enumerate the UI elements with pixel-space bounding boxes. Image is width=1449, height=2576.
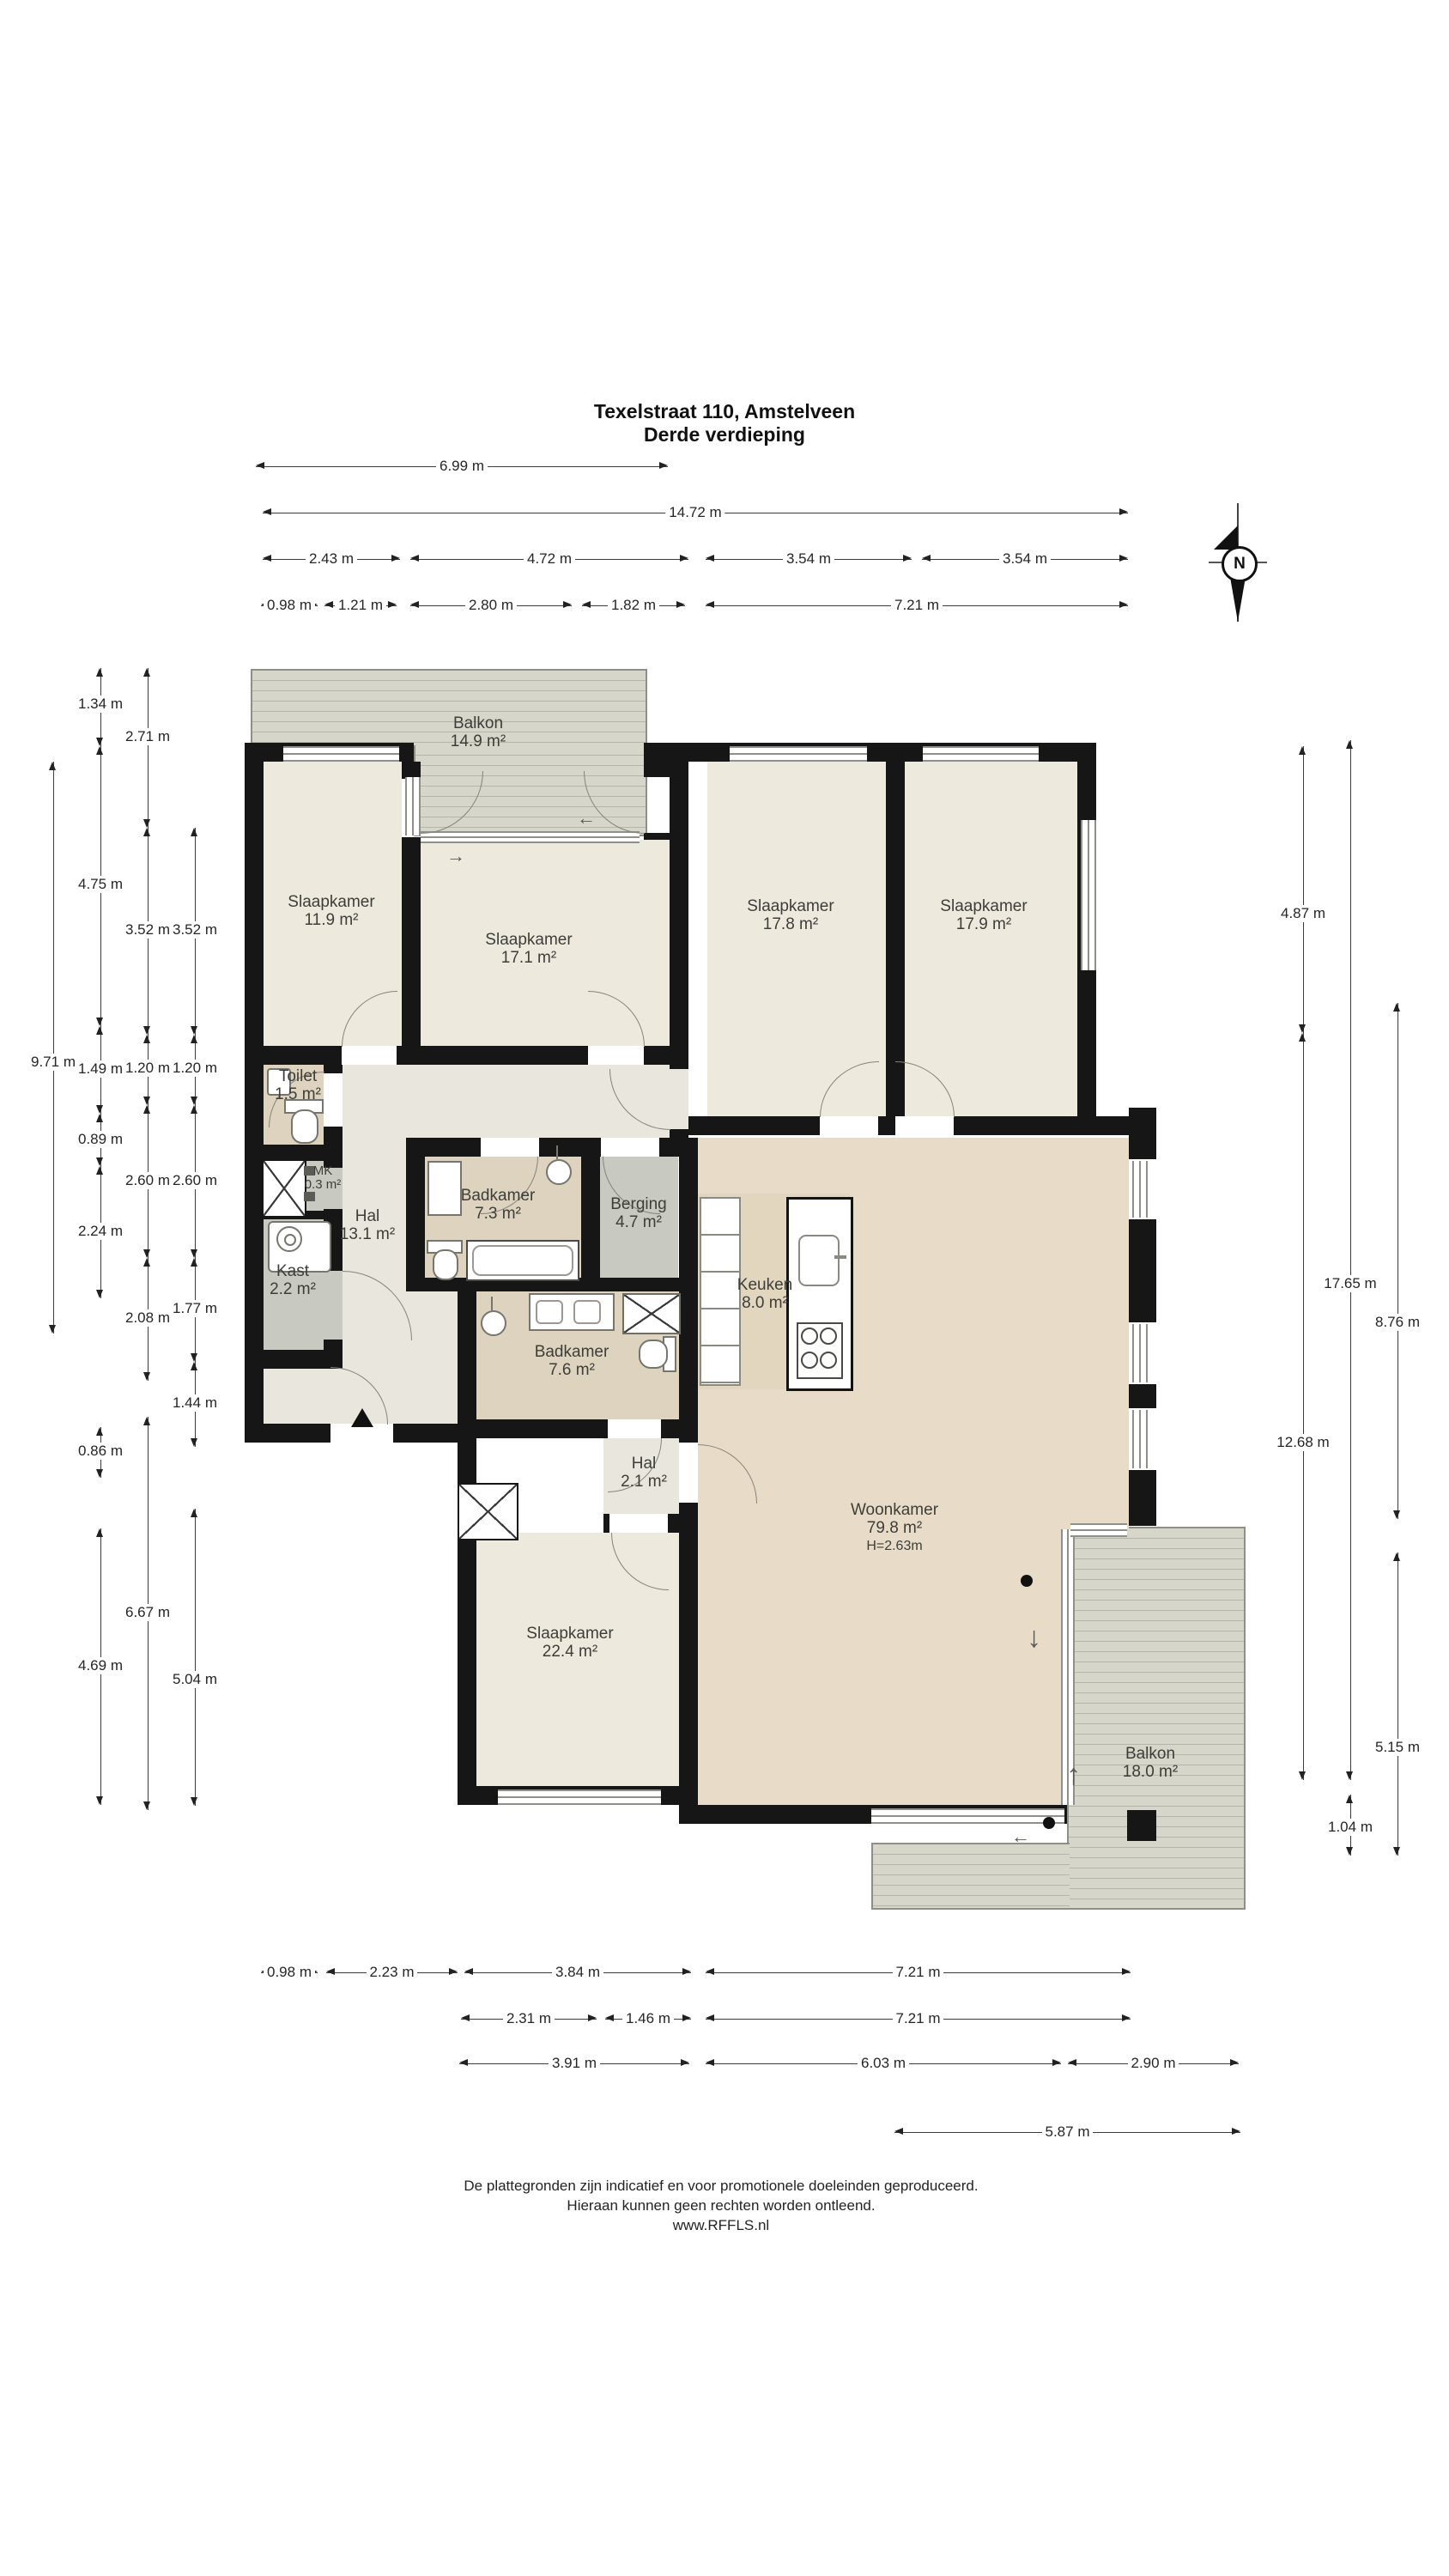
wall [954, 1116, 1096, 1135]
dimension-label: 7.21 m [891, 597, 943, 614]
dimension-line-horizontal: 1.21 m [324, 605, 397, 606]
room-label-slaapkamer-5: Slaapkamer22.4 m² [526, 1625, 613, 1661]
dimension-label: 6.67 m [122, 1604, 173, 1621]
floorplan-page: Texelstraat 110, Amstelveen Derde verdie… [0, 0, 1449, 2576]
shower-arm-icon [491, 1297, 493, 1310]
dimension-label: 12.68 m [1273, 1434, 1332, 1451]
room-label-balkon-zuid: Balkon18.0 m² [1123, 1745, 1178, 1781]
dimension-line-horizontal: 7.21 m [706, 1972, 1131, 1973]
dimension-line-vertical: 1.34 m [100, 668, 101, 746]
dimension-line-vertical: 5.04 m [195, 1509, 196, 1806]
dimension-line-vertical: 8.76 m [1397, 1003, 1398, 1519]
wall [644, 1046, 688, 1065]
dimension-label: 4.72 m [524, 550, 575, 568]
structural-column [1127, 1810, 1156, 1841]
dimension-label: 2.08 m [122, 1309, 173, 1327]
window [1132, 1324, 1148, 1382]
wall [688, 1116, 820, 1135]
wall [264, 1350, 343, 1369]
compass-rose: N [1222, 546, 1258, 582]
dimension-label: 6.99 m [436, 458, 488, 475]
dimension-line-vertical: 6.67 m [148, 1417, 149, 1810]
dimension-line-vertical: 17.65 m [1350, 740, 1351, 1780]
slide-direction-arrow-icon: ← [577, 809, 596, 828]
dimension-line-vertical: 3.52 m [148, 828, 149, 1035]
window [1132, 1161, 1148, 1218]
window [871, 1808, 1064, 1824]
boiler-dial-dot-icon [284, 1234, 296, 1246]
room-slaapkamer-4-floor [905, 762, 1077, 1116]
dimension-line-vertical: 2.60 m [195, 1105, 196, 1258]
dimension-label: 9.71 m [27, 1054, 79, 1071]
dimension-label: 17.65 m [1320, 1275, 1379, 1292]
footer-website: www.RFFLS.nl [464, 2215, 978, 2235]
dimension-label: 1.34 m [75, 696, 126, 713]
dimension-line-vertical: 5.15 m [1397, 1552, 1398, 1856]
compass-north-label: N [1234, 555, 1246, 573]
dimension-label: 3.54 m [999, 550, 1051, 568]
footer-line: Hieraan kunnen geen rechten worden ontle… [464, 2196, 978, 2215]
dimension-label: 1.20 m [169, 1060, 221, 1077]
dimension-line-vertical: 9.71 m [53, 762, 54, 1334]
washing-machine-icon [622, 1293, 681, 1334]
dimension-label: 7.21 m [893, 2010, 944, 2027]
kitchen-sink-icon [798, 1235, 840, 1286]
room-label-badkamer-1: Badkamer7.3 m² [461, 1187, 536, 1223]
dimension-line-horizontal: 1.82 m [582, 605, 685, 606]
shower-head-icon [546, 1159, 572, 1185]
dimension-line-vertical: 0.89 m [100, 1114, 101, 1166]
dimension-label: 14.72 m [665, 504, 724, 521]
wall [581, 1157, 600, 1278]
wall [1129, 1219, 1156, 1322]
dimension-line-vertical: 1.44 m [195, 1362, 196, 1447]
shower-head-icon [481, 1310, 506, 1336]
dimension-label: 0.86 m [75, 1443, 126, 1460]
footer-disclaimer: De plattegronden zijn indicatief en voor… [464, 2176, 978, 2235]
slide-direction-arrow-icon: ↑ [1066, 1760, 1081, 1789]
wall [603, 1514, 609, 1533]
slide-direction-arrow-icon: ← [1011, 1827, 1030, 1846]
dimension-line-vertical: 12.68 m [1303, 1033, 1304, 1780]
dimension-label: 1.44 m [169, 1394, 221, 1412]
wall [245, 1424, 330, 1443]
balcony-door-opening [405, 777, 421, 835]
dimension-label: 1.77 m [169, 1300, 221, 1317]
window [1132, 1410, 1148, 1468]
dimension-line-horizontal: 2.80 m [410, 605, 572, 606]
address-title: Texelstraat 110, Amstelveen [594, 400, 855, 423]
dimension-label: 3.52 m [169, 921, 221, 939]
window [498, 1789, 661, 1805]
stove-burner-icon [820, 1327, 837, 1345]
sliding-door [421, 831, 640, 843]
stove-burner-icon [801, 1352, 818, 1369]
window [923, 746, 1039, 762]
room-label-slaapkamer-2: Slaapkamer17.1 m² [485, 931, 572, 967]
stove-burner-icon [801, 1327, 818, 1345]
shaft-box [458, 1483, 518, 1540]
room-label-kast: Kast2.2 m² [270, 1262, 316, 1298]
dimension-line-vertical: 2.24 m [100, 1166, 101, 1298]
dimension-line-vertical: 3.52 m [195, 828, 196, 1035]
dimension-line-vertical: 1.20 m [148, 1035, 149, 1105]
dimension-label: 1.49 m [75, 1060, 126, 1078]
balcony-north-deck [251, 669, 647, 750]
dimension-label: 2.80 m [465, 597, 517, 614]
dimension-line-vertical: 1.20 m [195, 1035, 196, 1105]
dimension-label: 3.91 m [549, 2055, 600, 2072]
dimension-line-horizontal: 0.98 m [261, 605, 318, 606]
wall [402, 762, 421, 779]
compass-south-spike-icon [1230, 577, 1246, 622]
wall [1129, 1108, 1156, 1159]
room-label-slaapkamer-1: Slaapkamer11.9 m² [288, 893, 374, 929]
room-label-keuken: Keuken8.0 m² [737, 1276, 792, 1312]
wall [406, 1157, 425, 1278]
shower-arm-icon [556, 1145, 558, 1159]
dimension-label: 3.52 m [122, 921, 173, 939]
dimension-label: 5.87 m [1042, 2123, 1094, 2141]
wall [644, 762, 688, 777]
dimension-label: 2.23 m [367, 1964, 418, 1981]
wall [324, 1065, 343, 1073]
dimension-line-horizontal: 7.21 m [706, 605, 1128, 606]
dimension-line-horizontal: 6.99 m [256, 466, 668, 467]
room-label-slaapkamer-4: Slaapkamer17.9 m² [940, 897, 1027, 933]
dimension-label: 7.21 m [893, 1964, 944, 1981]
wall [264, 1046, 342, 1065]
dimension-label: 1.46 m [622, 2010, 674, 2027]
dimension-line-vertical: 2.60 m [148, 1105, 149, 1258]
footer-line: De plattegronden zijn indicatief en voor… [464, 2176, 978, 2196]
dimension-label: 3.54 m [783, 550, 834, 568]
wall [661, 1419, 679, 1438]
wall [878, 1116, 895, 1135]
room-label-mk: MK0.3 m² [305, 1164, 342, 1192]
dimension-label: 2.60 m [169, 1172, 221, 1189]
stove-burner-icon [820, 1352, 837, 1369]
column-dot [1021, 1575, 1033, 1587]
window [283, 746, 399, 762]
dimension-line-horizontal: 3.54 m [706, 559, 912, 560]
wall [458, 1291, 476, 1424]
wall [397, 1046, 588, 1065]
dimension-line-vertical: 2.08 m [148, 1258, 149, 1381]
wall [670, 777, 688, 1069]
bathtub-inner-icon [472, 1245, 573, 1276]
dimension-line-vertical: 1.04 m [1350, 1795, 1351, 1856]
dimension-line-horizontal: 2.90 m [1068, 2063, 1239, 2064]
room-label-toilet: Toilet1.5 m² [275, 1067, 321, 1103]
dimension-line-horizontal: 4.72 m [410, 559, 688, 560]
bathroom-cabinet-icon [427, 1161, 462, 1216]
wall [458, 1424, 476, 1805]
dimension-line-vertical: 4.69 m [100, 1528, 101, 1805]
dimension-label: 0.89 m [75, 1131, 126, 1148]
dimension-line-vertical: 4.87 m [1303, 746, 1304, 1033]
dimension-label: 5.15 m [1372, 1739, 1423, 1756]
window [730, 746, 867, 762]
page-title: Texelstraat 110, Amstelveen Derde verdie… [594, 400, 855, 447]
room-label-hal-1: Hal13.1 m² [340, 1207, 395, 1243]
kitchen-cabinets [700, 1197, 741, 1386]
shaft-box [262, 1159, 306, 1218]
dimension-label: 0.98 m [264, 597, 315, 614]
dimension-label: 2.71 m [122, 728, 173, 745]
dimension-line-vertical: 1.49 m [100, 1026, 101, 1114]
slide-direction-arrow-icon: → [446, 847, 465, 866]
dimension-label: 2.90 m [1128, 2055, 1179, 2072]
balcony-south-deck [1067, 1527, 1246, 1910]
dimension-label: 1.82 m [608, 597, 659, 614]
wall [393, 1424, 458, 1443]
wall [406, 1138, 481, 1157]
dimension-label: 5.04 m [169, 1671, 221, 1688]
toilet-bowl-icon [433, 1249, 458, 1280]
dimension-line-vertical: 4.75 m [100, 746, 101, 1026]
dimension-label: 2.24 m [75, 1223, 126, 1240]
wall [1129, 1470, 1156, 1526]
room-label-berging: Berging4.7 m² [610, 1195, 667, 1231]
dimension-line-horizontal: 14.72 m [263, 513, 1128, 513]
dimension-label: 3.84 m [552, 1964, 603, 1981]
column-dot [1043, 1817, 1055, 1829]
wall [1129, 1384, 1156, 1408]
wall [476, 1419, 608, 1438]
room-label-badkamer-2: Badkamer7.6 m² [535, 1343, 609, 1379]
sink-basin-icon [573, 1300, 601, 1324]
dimension-label: 1.20 m [122, 1060, 173, 1077]
dimension-line-horizontal: 6.03 m [706, 2063, 1061, 2064]
room-label-woonkamer: Woonkamer79.8 m²H=2.63m [851, 1501, 938, 1555]
wall [402, 837, 421, 1046]
dimension-label: 4.75 m [75, 876, 126, 893]
dimension-line-horizontal: 7.21 m [706, 2019, 1131, 2020]
room-label-slaapkamer-3: Slaapkamer17.8 m² [747, 897, 834, 933]
dimension-line-horizontal: 3.54 m [922, 559, 1128, 560]
dimension-line-vertical: 1.77 m [195, 1258, 196, 1362]
room-woonkamer-floor-b [698, 1529, 1063, 1805]
floor-subtitle: Derde verdieping [594, 423, 855, 447]
dimension-label: 1.04 m [1325, 1819, 1376, 1836]
wall [670, 1129, 688, 1138]
room-label-hal-2: Hal2.1 m² [621, 1455, 667, 1491]
balcony-glass-wall [1070, 1523, 1127, 1537]
wall [679, 1138, 698, 1443]
dimension-label: 0.98 m [264, 1964, 315, 1981]
entrance-arrow-icon [351, 1408, 373, 1427]
dimension-line-horizontal: 0.98 m [261, 1972, 318, 1973]
dimension-line-horizontal: 1.46 m [605, 2019, 691, 2020]
dimension-line-horizontal: 3.91 m [459, 2063, 689, 2064]
meter-icon [304, 1192, 315, 1201]
wall [668, 1514, 679, 1533]
window [1081, 820, 1096, 970]
dimension-line-vertical: 0.86 m [100, 1427, 101, 1478]
dimension-line-horizontal: 2.43 m [263, 559, 400, 560]
wall [679, 1503, 698, 1805]
slide-direction-arrow-icon: ↓ [1027, 1623, 1041, 1652]
toilet-bowl-icon [639, 1340, 668, 1369]
dimension-line-horizontal: 5.87 m [894, 2132, 1240, 2133]
dimension-line-horizontal: 2.31 m [461, 2019, 597, 2020]
dimension-label: 8.76 m [1372, 1314, 1423, 1331]
dimension-label: 2.31 m [503, 2010, 555, 2027]
wall [539, 1138, 601, 1157]
dimension-label: 6.03 m [858, 2055, 909, 2072]
wall [245, 743, 264, 1443]
dimension-line-vertical: 2.71 m [148, 668, 149, 828]
dimension-label: 1.21 m [335, 597, 386, 614]
dimension-label: 4.69 m [75, 1657, 126, 1674]
toilet-bowl-icon [291, 1109, 318, 1144]
room-label-balkon-noord: Balkon14.9 m² [451, 714, 506, 750]
room-slaapkamer-3-floor [707, 762, 886, 1116]
sink-basin-icon [536, 1300, 563, 1324]
dimension-label: 4.87 m [1277, 905, 1329, 922]
kitchen-faucet-icon [834, 1255, 846, 1259]
dimension-line-horizontal: 3.84 m [464, 1972, 691, 1973]
dimension-label: 2.60 m [122, 1172, 173, 1189]
dimension-label: 2.43 m [306, 550, 357, 568]
dimension-line-horizontal: 2.23 m [326, 1972, 458, 1973]
balcony-south-strip-deck [871, 1843, 1070, 1910]
